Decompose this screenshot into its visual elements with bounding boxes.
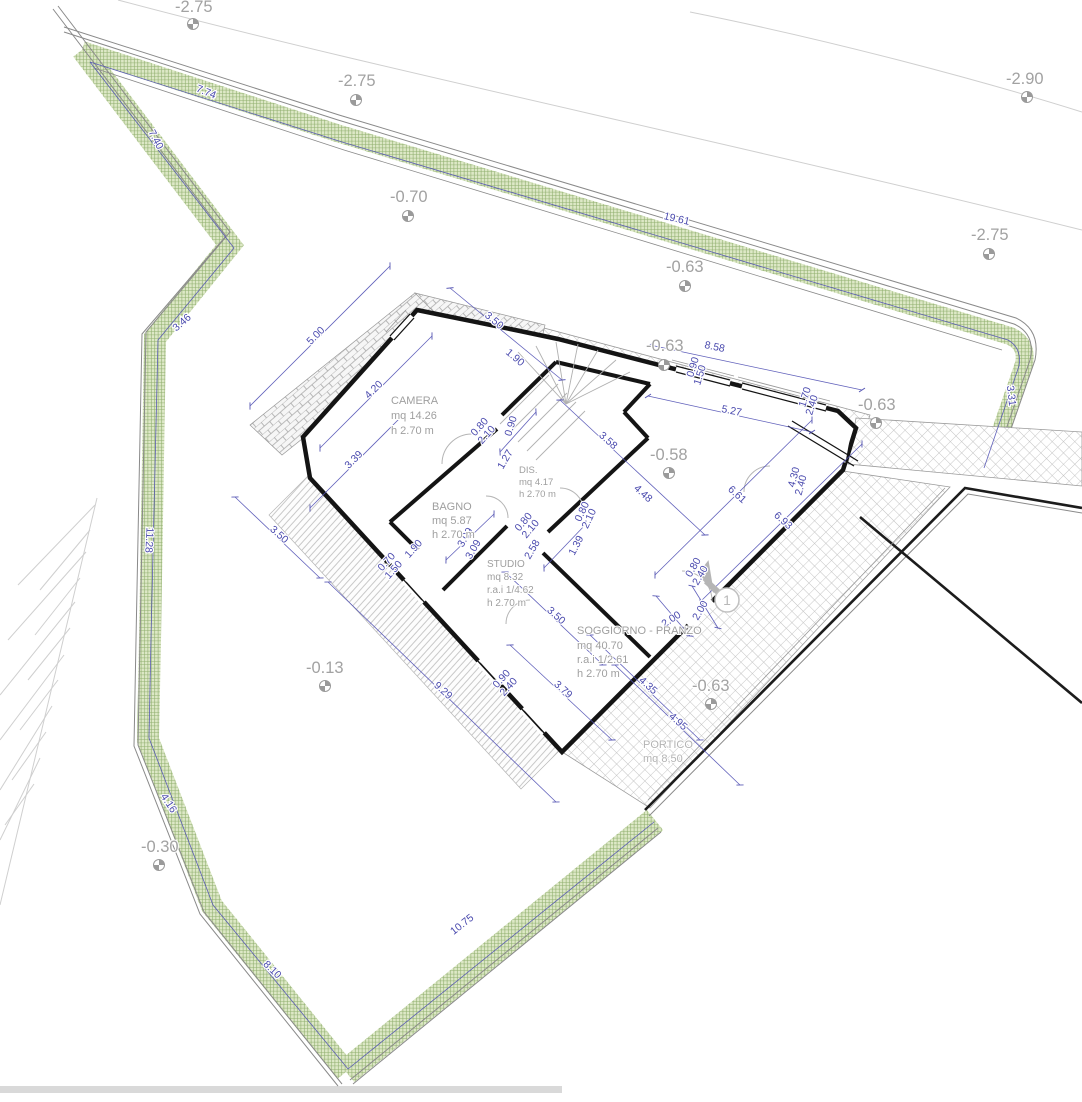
room-name: PORTICO [643, 739, 693, 751]
room-rai: r.a.i 1/2.61 [577, 654, 628, 666]
elevation-label: -0.58 [650, 446, 688, 464]
house [303, 310, 858, 752]
elevation-label: -2.75 [971, 226, 1009, 244]
room-area: mq 5.87 [432, 515, 472, 527]
room-height: h 2.70 m [432, 529, 475, 541]
elevation-label: -0.63 [858, 396, 896, 414]
room-area: mq 4.17 [519, 477, 553, 488]
dim-label: 11.28 [142, 527, 155, 553]
dim-label: 8.58 [703, 339, 726, 355]
step-number: 1 [723, 592, 731, 608]
room-area: mq 8,50 [643, 753, 683, 765]
dim-label: 10.75 [448, 912, 476, 938]
room-height: h 2.70 m [519, 489, 556, 500]
floor-plan-canvas: 1 -2.75 -2.75 -2.90 -2.75 -0.70 -0.63 -0… [0, 0, 1082, 1102]
room-area: mq 14.26 [391, 410, 437, 422]
elevation-label: -0.13 [306, 659, 344, 677]
elevation-label: -0.30 [141, 838, 179, 856]
room-name: BAGNO [432, 501, 472, 513]
road-embankment [0, 498, 97, 905]
floor-plan-drawing: 1 -2.75 -2.75 -2.90 -2.75 -0.70 -0.63 -0… [0, 0, 1082, 1102]
room-height: h 2.70 m [391, 425, 434, 437]
elevation-label: -0.63 [666, 258, 704, 276]
room-name: STUDIO [487, 559, 525, 570]
room-height: h 2.70 m [577, 668, 620, 680]
room-name: CAMERA [391, 395, 439, 407]
elevation-label: -2.90 [1006, 70, 1044, 88]
elevation-label: -2.75 [338, 72, 376, 90]
room-height: h 2.70 m [487, 598, 526, 609]
elevation-label: -0.63 [692, 677, 730, 695]
room-rai: r.a.i 1/4.62 [487, 585, 534, 596]
room-name: SOGGIORNO - PRANZO [577, 625, 702, 637]
dim-label: 3.31 [1004, 385, 1018, 407]
dim-label: 5.00 [304, 324, 327, 347]
elevation-label: -2.75 [175, 0, 213, 16]
elevation-label: -0.70 [390, 188, 428, 206]
sheet-edge-bar [0, 1086, 562, 1093]
room-area: mq 40.70 [577, 640, 623, 652]
elevation-label: -0.63 [646, 337, 684, 355]
room-name: DIS. [519, 465, 537, 476]
room-area: mq 8.32 [487, 572, 524, 583]
